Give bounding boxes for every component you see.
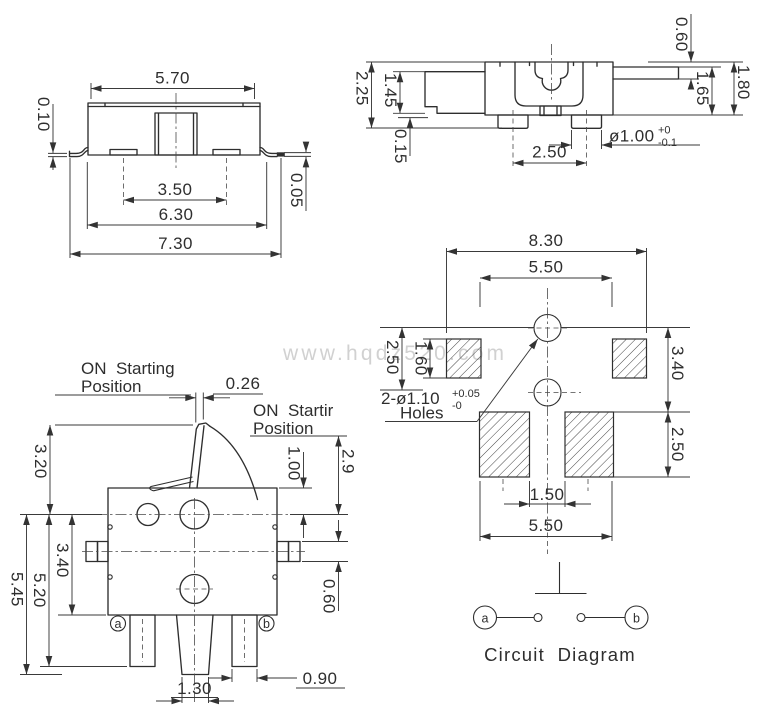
front-view: 5.70 0.10 3.50 6.30 7.30 0.05 xyxy=(34,69,311,259)
pad-upper-left xyxy=(447,339,482,378)
top-view: 2.25 1.45 0.15 0.60 1.65 1.80 2.50 ø1.00… xyxy=(353,14,754,168)
pcb-view: 8.30 5.50 2.50 1.60 3.40 2.50 1.50 5.50 … xyxy=(380,231,690,554)
dim-front-total-width: 7.30 xyxy=(158,234,193,253)
dim-front-pad-pitch: 3.50 xyxy=(158,180,193,199)
label-on-starting-right-line1: ON Startir xyxy=(253,401,334,420)
drawing-sheet: www.hqdz520.com xyxy=(0,0,758,713)
dim-top-tip-gap: 0.60 xyxy=(672,17,691,52)
dim-lever-shoulder-height: 1.00 xyxy=(285,446,304,481)
dim-top-foot-diameter-tol-minus: -0.1 xyxy=(658,137,677,149)
dim-top-foot-pitch: 2.50 xyxy=(532,143,567,162)
circuit-caption: Circuit Diagram xyxy=(484,644,636,665)
dim-top-foot-diameter-tol-plus: +0 xyxy=(658,125,671,137)
dim-pcb-hole-offset: 2.50 xyxy=(383,340,402,375)
circuit-terminal-a-letter: a xyxy=(482,612,489,626)
note-holes-tol-minus: -0 xyxy=(452,400,462,412)
dim-lever-body-height: 3.40 xyxy=(53,543,72,578)
dim-lever-tip-height: 2.9 xyxy=(339,449,358,474)
terminal-b-letter: b xyxy=(263,617,270,631)
lever-view: a b xyxy=(8,359,358,703)
dim-center-leg-width: 1.30 xyxy=(177,679,212,698)
dim-top-foot-diameter: ø1.00 xyxy=(609,127,654,146)
pad-lower-right xyxy=(565,412,614,477)
switch-dimension-drawing: www.hqdz520.com xyxy=(0,0,758,713)
dim-front-lead-thickness: 0.10 xyxy=(34,97,53,132)
dim-lever-width: 0.26 xyxy=(226,374,261,393)
dim-pcb-row-span: 3.40 xyxy=(668,346,687,381)
dim-top-total-height: 2.25 xyxy=(353,71,372,106)
terminal-a-letter: a xyxy=(115,617,122,631)
dim-lever-leg-height: 5.20 xyxy=(30,573,49,608)
dim-front-standoff: 0.05 xyxy=(287,173,306,208)
dim-pcb-inner-width: 5.50 xyxy=(529,258,564,277)
pcb-solder-pads xyxy=(447,339,647,477)
pad-lower-left xyxy=(480,412,530,477)
label-on-starting-left-line2: Position xyxy=(81,377,141,396)
dim-top-shaft-to-base: 1.65 xyxy=(693,71,712,106)
dim-pcb-lower-pad-height: 2.50 xyxy=(668,427,687,462)
circuit-diagram: a b Circuit Diagram xyxy=(474,562,649,665)
circuit-symbol xyxy=(474,562,649,629)
dim-pcb-pad-gap: 1.50 xyxy=(530,485,565,504)
front-right-lead-stub xyxy=(277,152,285,156)
dim-pcb-outer-width: 8.30 xyxy=(529,231,564,250)
pad-upper-right xyxy=(613,339,647,378)
front-body-outline xyxy=(70,103,278,157)
dim-pcb-pad-height: 1.60 xyxy=(412,341,431,376)
dim-top-body-height: 1.80 xyxy=(734,65,753,100)
note-holes-label: Holes xyxy=(400,404,443,423)
label-on-starting-left-line1: ON Starting xyxy=(81,359,175,378)
dim-lever-height: 3.20 xyxy=(31,444,50,479)
dim-pcb-lower-width: 5.50 xyxy=(529,516,564,535)
dim-front-lead-span: 6.30 xyxy=(159,205,194,224)
circuit-terminal-b-letter: b xyxy=(633,612,640,626)
dim-lever-bump-height: 0.60 xyxy=(320,579,339,614)
label-on-starting-right-line2: Position xyxy=(253,419,313,438)
dim-lever-total-height: 5.45 xyxy=(8,572,27,607)
dim-top-arm-height: 1.45 xyxy=(381,73,400,108)
dim-top-foot-standoff: 0.15 xyxy=(391,129,410,164)
dim-front-top-width: 5.70 xyxy=(155,69,190,88)
note-holes-tol-plus: +0.05 xyxy=(452,388,480,400)
lever-alternate-position xyxy=(108,477,277,579)
dim-outer-leg-width: 0.90 xyxy=(303,669,338,688)
lever-body-outline xyxy=(86,423,300,675)
